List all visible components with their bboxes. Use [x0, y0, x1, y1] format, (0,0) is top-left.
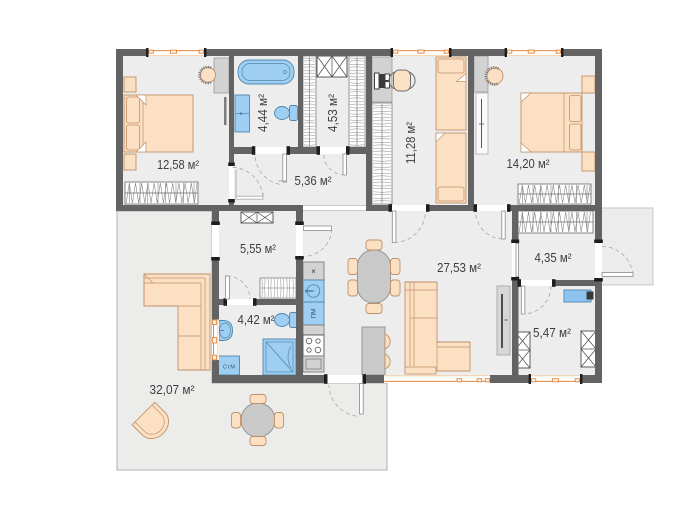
svg-text:4,53 м²: 4,53 м² [325, 93, 340, 132]
svg-text:5,36 м²: 5,36 м² [295, 173, 333, 188]
svg-text:5,47 м²: 5,47 м² [533, 325, 572, 340]
svg-text:12,58 м²: 12,58 м² [157, 157, 200, 172]
svg-text:32,07 м²: 32,07 м² [150, 382, 196, 397]
svg-text:4,35 м²: 4,35 м² [535, 250, 573, 265]
svg-text:ПМ: ПМ [311, 308, 318, 318]
svg-text:5,55 м²: 5,55 м² [240, 241, 277, 256]
svg-text:4,44 м²: 4,44 м² [255, 93, 270, 132]
svg-text:27,53 м²: 27,53 м² [437, 260, 482, 275]
svg-text:Ст.М: Ст.М [223, 365, 235, 371]
svg-text:14,20 м²: 14,20 м² [507, 156, 551, 171]
svg-text:4,42 м²: 4,42 м² [238, 312, 276, 327]
svg-text:×: × [311, 267, 316, 276]
svg-text:11,28 м²: 11,28 м² [403, 121, 418, 164]
